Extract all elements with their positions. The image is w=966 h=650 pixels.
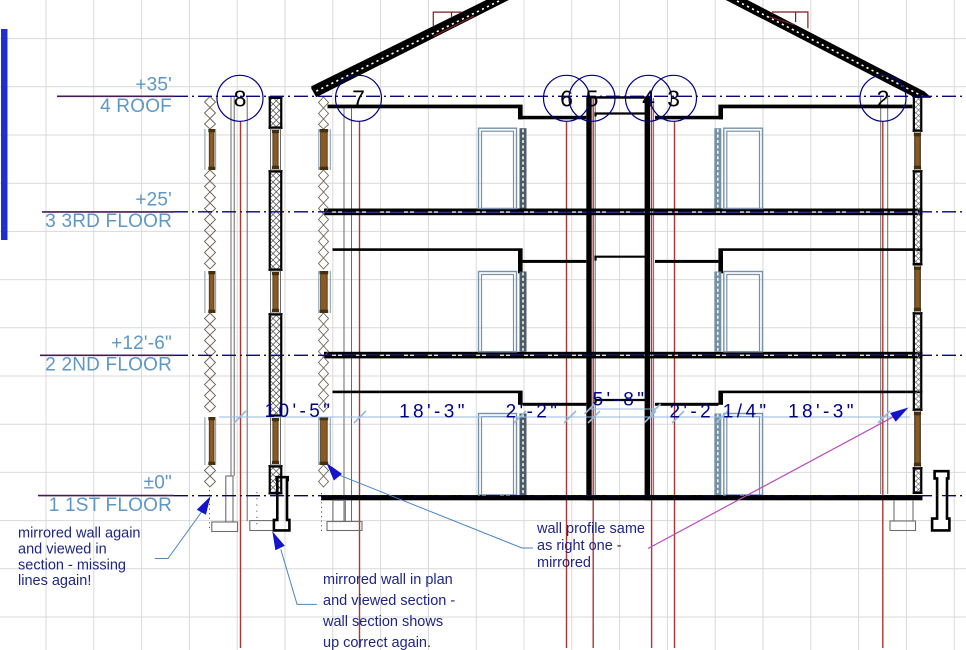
svg-text:4 ROOF: 4 ROOF: [100, 96, 172, 117]
svg-text:8: 8: [234, 86, 247, 112]
svg-text:2'-2 1/4": 2'-2 1/4": [669, 402, 769, 423]
svg-text:mirrored wall in plan: mirrored wall in plan: [323, 572, 453, 588]
svg-text:±0": ±0": [144, 473, 172, 494]
svg-text:+25': +25': [135, 190, 172, 211]
svg-text:+35': +35': [135, 75, 172, 96]
svg-text:18'-3": 18'-3": [399, 402, 468, 423]
svg-text:3: 3: [667, 86, 680, 112]
svg-text:18'-3": 18'-3": [788, 402, 857, 423]
svg-text:mirrored: mirrored: [537, 555, 591, 571]
svg-text:5: 5: [586, 86, 599, 112]
svg-text:and viewed in: and viewed in: [18, 541, 107, 557]
svg-text:1 1ST FLOOR: 1 1ST FLOOR: [49, 495, 172, 516]
svg-text:3 3RD FLOOR: 3 3RD FLOOR: [45, 211, 172, 232]
svg-text:10'-5": 10'-5": [265, 401, 334, 422]
svg-text:mirrored wall again: mirrored wall again: [18, 526, 141, 542]
svg-text:lines again!: lines again!: [18, 573, 91, 589]
svg-text:7: 7: [352, 86, 365, 112]
svg-text:section - missing: section - missing: [18, 557, 126, 573]
svg-text:wall profile same: wall profile same: [536, 521, 645, 537]
svg-text:up correct again.: up correct again.: [323, 635, 431, 650]
svg-text:2'-2": 2'-2": [506, 402, 561, 423]
svg-text:and viewed section -: and viewed section -: [323, 593, 455, 609]
svg-text:5'-8": 5'-8": [593, 390, 648, 411]
svg-text:as right one -: as right one -: [537, 538, 622, 554]
svg-text:2 2ND FLOOR: 2 2ND FLOOR: [45, 355, 172, 376]
svg-text:wall section shows: wall section shows: [322, 614, 443, 630]
svg-text:2: 2: [877, 86, 890, 112]
svg-text:+12'-6": +12'-6": [111, 333, 172, 354]
